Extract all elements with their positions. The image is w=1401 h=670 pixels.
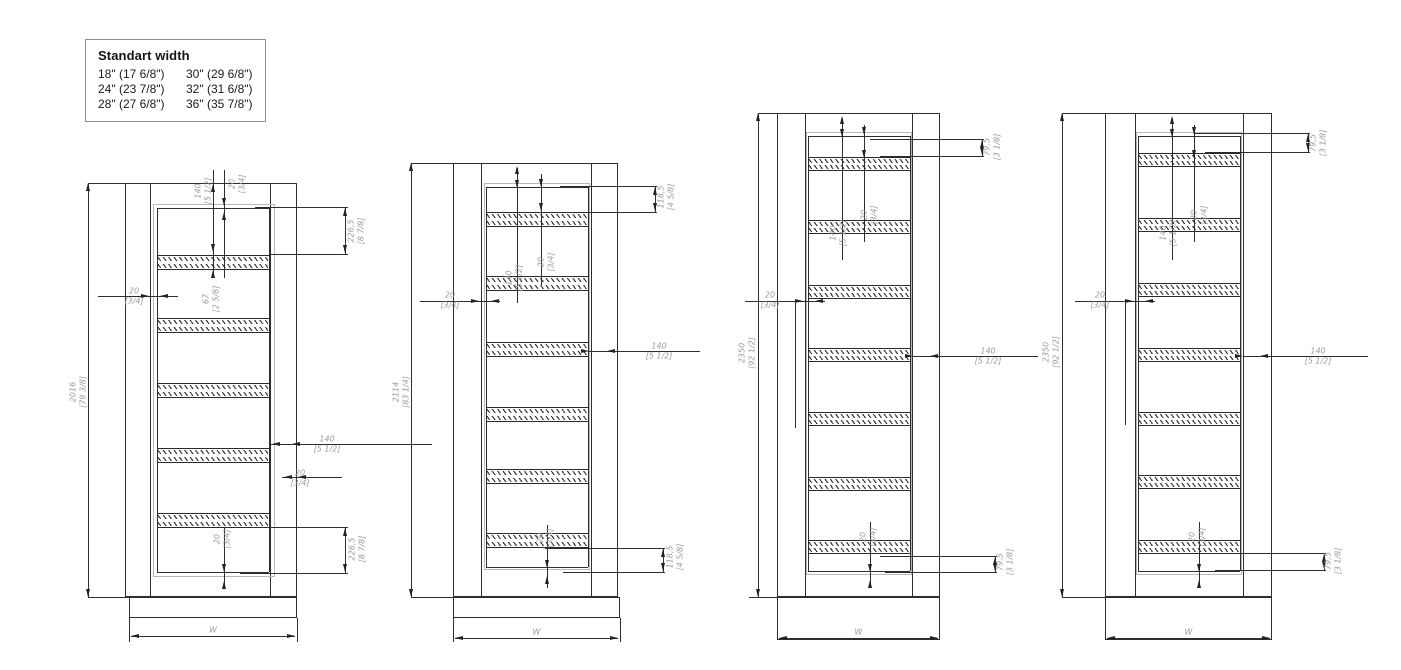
door2-extension-tick xyxy=(453,618,454,642)
louver-hatch-row xyxy=(809,485,909,489)
door2-dimension-line xyxy=(580,212,657,213)
louver-hatch-row xyxy=(809,287,909,291)
dimension-arrow xyxy=(930,354,938,358)
door4-dim-label-center2: 20 [3/4] xyxy=(1190,205,1209,224)
dimension-arrow xyxy=(539,203,543,211)
louver-hatch-row xyxy=(158,385,268,389)
dimension-arrow xyxy=(862,150,866,158)
louver-hatch-row xyxy=(158,327,268,331)
dimension-arrow xyxy=(515,166,519,174)
dimension-arrow xyxy=(661,563,665,571)
louver-hatch-row xyxy=(487,285,587,289)
door2-height-dimension-line xyxy=(411,163,412,597)
width-option: 24" (23 7/8") xyxy=(98,82,186,97)
dimension-arrow xyxy=(409,163,413,171)
dimension-arrow xyxy=(86,589,90,597)
door1-louver-strip xyxy=(157,318,269,333)
door2-stile-line xyxy=(591,163,592,597)
technical-drawing-canvas: Standart width 18" (17 6/8") 30" (29 6/8… xyxy=(0,0,1401,670)
door3-dim-label-bottom_center: 20 [3/4] xyxy=(859,527,878,546)
louver-hatch-row xyxy=(1139,477,1239,481)
door3-dim-label-left: 20 [3/4] xyxy=(760,291,779,310)
dimension-arrow xyxy=(840,129,844,137)
dimension-arrow xyxy=(545,560,549,568)
door1-dim-label-center: 67 [2 5/8] xyxy=(202,286,221,313)
door1-dimension-line xyxy=(270,254,348,255)
dimension-arrow xyxy=(1192,150,1196,158)
dimension-arrow xyxy=(292,442,300,446)
dimension-arrow xyxy=(779,636,787,640)
door1-dim-label-right_bottom: 226,5 [8 7/8] xyxy=(348,536,367,563)
door2-height-label: 2114 [83 1/4] xyxy=(392,376,411,408)
door4-dim-label-left: 20 [3/4] xyxy=(1090,291,1109,310)
door1-louver-strip xyxy=(157,513,269,528)
width-option: 36" (35 7/8") xyxy=(186,97,253,112)
dimension-arrow xyxy=(607,349,615,353)
door4-bottom-rail-line xyxy=(1138,571,1240,572)
door3-dimension-line xyxy=(880,156,984,157)
dimension-arrow xyxy=(211,244,215,252)
dimension-arrow xyxy=(515,180,519,188)
louver-hatch-row xyxy=(809,228,909,232)
dimension-arrow xyxy=(455,636,463,640)
door2-dimension-line xyxy=(545,548,665,549)
door1-dimension-line xyxy=(223,527,348,528)
door1-dimension-line xyxy=(255,207,348,208)
louver-hatch-row xyxy=(158,457,268,461)
door2-dim-label-right_bottom: 118,5 [4 5/8] xyxy=(666,544,685,571)
door4-dim-label-center1: 140 [5 1/2] xyxy=(1159,220,1178,247)
dimension-arrow xyxy=(1060,113,1064,121)
door2-panel-right-line xyxy=(588,187,589,567)
door1-louver-strip xyxy=(157,448,269,463)
louver-hatch-row xyxy=(1139,285,1239,289)
louver-hatch-row xyxy=(158,515,268,519)
louver-hatch-row xyxy=(809,356,909,360)
door2-louver-strip xyxy=(486,342,588,357)
louver-hatch-row xyxy=(1139,548,1239,552)
dimension-arrow xyxy=(1260,354,1268,358)
door4-dim-label-bottom_center: 20 [3/4] xyxy=(1188,527,1207,546)
door3-width-dimension-line xyxy=(779,638,938,639)
door2-dimension-line xyxy=(589,351,700,352)
door3-dimension-line xyxy=(870,139,984,140)
dimension-arrow xyxy=(471,299,479,303)
louver-hatch-row xyxy=(1139,155,1239,159)
door1-panel-right-line xyxy=(269,208,270,572)
door2-dim-label-center1: 140 [5 1/2] xyxy=(505,265,524,292)
door3-louver-strip xyxy=(808,412,910,426)
dimension-arrow xyxy=(581,349,589,353)
dimension-arrow xyxy=(610,636,618,640)
door1-dim-label-top2: 20 [3/4] xyxy=(228,174,247,193)
louver-hatch-row xyxy=(809,293,909,297)
door2-extension-line xyxy=(411,163,453,164)
louver-hatch-row xyxy=(1139,414,1239,418)
dimension-arrow xyxy=(491,299,499,303)
dimension-arrow xyxy=(222,212,226,220)
door2-bottom-rail-line xyxy=(486,567,588,568)
door3-dim-label-center1: 140 [5 1/2] xyxy=(829,220,848,247)
door2-dim-label-right_top: 118,5 [4 5/8] xyxy=(657,184,676,211)
louver-hatch-row xyxy=(809,165,909,169)
door3-louver-strip xyxy=(808,477,910,491)
door4-louver-strip xyxy=(1138,153,1240,167)
width-option: 18" (17 6/8") xyxy=(98,67,186,82)
door4-dim-label-right_top: 79,5 [3 1/8] xyxy=(1309,130,1328,157)
louver-hatch-row xyxy=(158,450,268,454)
door1-height-dimension-line xyxy=(88,183,89,597)
dimension-arrow xyxy=(545,576,549,584)
dimension-arrow xyxy=(86,183,90,191)
dimension-arrow xyxy=(409,589,413,597)
door2-width-dimension-line xyxy=(455,638,618,639)
door4-width-dimension-line xyxy=(1107,638,1270,639)
dimension-arrow xyxy=(222,564,226,572)
door1-base xyxy=(129,597,297,618)
louver-hatch-row xyxy=(1139,483,1239,487)
door1-dim-label-bottom_center: 20 [3/4] xyxy=(213,529,232,548)
door4-dim-label-right_bottom: 79,5 [3 1/8] xyxy=(1324,548,1343,575)
door4-louver-strip xyxy=(1138,348,1240,362)
door3-dimension-line xyxy=(745,301,825,302)
dimension-arrow xyxy=(343,245,347,253)
width-option: 30" (29 6/8") xyxy=(186,67,253,82)
door4-louver-strip xyxy=(1138,412,1240,426)
door4-width-label: W xyxy=(1185,627,1193,637)
dimension-arrow xyxy=(756,113,760,121)
louver-hatch-row xyxy=(809,479,909,483)
door2-extension-tick xyxy=(620,618,621,642)
louver-hatch-row xyxy=(158,392,268,396)
dimension-arrow xyxy=(661,549,665,557)
dimension-arrow xyxy=(1060,589,1064,597)
door1-extension-tick xyxy=(297,618,298,642)
louver-hatch-row xyxy=(809,548,909,552)
door1-dimension-line xyxy=(240,573,348,574)
door4-extension-line xyxy=(1062,597,1105,598)
dimension-arrow xyxy=(756,589,760,597)
door4-dim-label-right_mid1: 140 [5 1/2] xyxy=(1305,347,1332,366)
door2-dim-label-center2: 20 [3/4] xyxy=(537,252,556,271)
door1-stile-line xyxy=(150,183,151,597)
door2-dimension-line xyxy=(420,301,500,302)
louver-hatch-row xyxy=(487,278,587,282)
louver-hatch-row xyxy=(487,471,587,475)
door2-leaf xyxy=(484,183,590,570)
dimension-arrow xyxy=(840,116,844,124)
door2-base xyxy=(453,597,620,618)
door3-height-label: 2350 [92 1/2] xyxy=(738,337,757,369)
louver-hatch-row xyxy=(1139,291,1239,295)
louver-hatch-row xyxy=(809,414,909,418)
door1-louver-strip xyxy=(157,383,269,398)
door2-louver-strip xyxy=(486,407,588,422)
width-option: 32" (31 6/8") xyxy=(186,82,253,97)
door1-dimension-line xyxy=(224,170,225,278)
door2-louver-strip xyxy=(486,276,588,291)
louver-hatch-row xyxy=(1139,350,1239,354)
door3-width-label: W xyxy=(855,627,863,637)
dimension-arrow xyxy=(868,564,872,572)
louver-hatch-row xyxy=(487,344,587,348)
dimension-arrow xyxy=(1170,129,1174,137)
door4-height-label: 2350 [92 1/2] xyxy=(1042,336,1061,368)
door2-louver-strip xyxy=(486,469,588,484)
door2-extension-line xyxy=(411,597,453,598)
louver-hatch-row xyxy=(809,350,909,354)
legend-grid: 18" (17 6/8") 30" (29 6/8") 24" (23 7/8"… xyxy=(98,67,253,112)
dimension-arrow xyxy=(131,634,139,638)
door4-dimension-line xyxy=(1195,133,1310,134)
dimension-arrow xyxy=(272,442,280,446)
door2-top-rail-line xyxy=(486,187,588,188)
door3-top-rail-line xyxy=(808,136,910,137)
door4-height-dimension-line xyxy=(1062,113,1063,597)
door4-dimension-line xyxy=(1205,152,1310,153)
dimension-arrow xyxy=(1262,636,1270,640)
door4-dimension-line xyxy=(1125,301,1126,425)
door4-dimension-line xyxy=(1075,301,1155,302)
door1-extension-line xyxy=(88,183,125,184)
door2-louver-strip xyxy=(486,212,588,227)
dimension-arrow xyxy=(862,127,866,135)
door2-stile-line xyxy=(481,163,482,597)
dimension-arrow xyxy=(343,564,347,572)
door1-extension-tick xyxy=(129,618,130,642)
louver-hatch-row xyxy=(487,351,587,355)
door3-dim-label-right_bottom: 79,5 [3 1/8] xyxy=(996,549,1015,576)
louver-hatch-row xyxy=(487,409,587,413)
door3-extension-line xyxy=(758,113,777,114)
door1-width-dimension-line xyxy=(131,636,295,637)
door4-extension-line xyxy=(1062,113,1105,114)
door1-width-label: W xyxy=(209,625,217,635)
door1-dim-label-top1: 140 [5 1/2] xyxy=(194,178,213,205)
door2-panel-left-line xyxy=(486,187,487,567)
dimension-arrow xyxy=(222,198,226,206)
door4-stile-line xyxy=(1243,113,1244,597)
door3-dim-label-right_mid1: 140 [5 1/2] xyxy=(975,347,1002,366)
door3-dim-label-right_top: 79,5 [3 1/8] xyxy=(983,134,1002,161)
dimension-arrow xyxy=(1197,580,1201,588)
door3-louver-strip xyxy=(808,348,910,362)
dimension-arrow xyxy=(1125,299,1133,303)
dimension-arrow xyxy=(795,299,803,303)
door1-height-label: 2016 [79 3/8] xyxy=(69,376,88,408)
door4-dimension-line xyxy=(1210,553,1326,554)
door2-dimension-line xyxy=(563,572,665,573)
louver-hatch-row xyxy=(487,478,587,482)
dimension-arrow xyxy=(868,580,872,588)
door2-dim-label-left: 20 [3/4] xyxy=(440,291,459,310)
dimension-arrow xyxy=(211,270,215,278)
door3-height-dimension-line xyxy=(758,113,759,597)
door1-dim-label-right_mid1: 140 [5 1/2] xyxy=(314,435,341,454)
louver-hatch-row xyxy=(1139,161,1239,165)
door2-dim-label-bottom_center: 20 [3/4] xyxy=(536,528,555,547)
louver-hatch-row xyxy=(809,420,909,424)
dimension-arrow xyxy=(905,354,913,358)
louver-hatch-row xyxy=(1139,356,1239,360)
door4-louver-strip xyxy=(1138,475,1240,489)
door3-dimension-line xyxy=(885,572,997,573)
door3-extension-line xyxy=(749,597,777,598)
dimension-arrow xyxy=(1197,564,1201,572)
dimension-arrow xyxy=(1235,354,1243,358)
door4-louver-strip xyxy=(1138,283,1240,297)
dimension-arrow xyxy=(815,299,823,303)
door2-width-label: W xyxy=(533,627,541,637)
door1-dim-label-right_top: 226,5 [8 7/8] xyxy=(347,218,366,245)
dimension-arrow xyxy=(287,634,295,638)
dimension-arrow xyxy=(222,581,226,589)
louver-hatch-row xyxy=(487,214,587,218)
louver-hatch-row xyxy=(1139,226,1239,230)
door2-dimension-line xyxy=(560,186,657,187)
legend-title: Standart width xyxy=(98,48,253,63)
door3-dimension-line xyxy=(880,556,997,557)
door3-dim-label-center2: 20 [3/4] xyxy=(860,205,879,224)
dimension-arrow xyxy=(539,179,543,187)
door3-louver-strip xyxy=(808,285,910,299)
louver-hatch-row xyxy=(1139,420,1239,424)
door1-extension-line xyxy=(88,597,129,598)
door1-dim-label-right_mid2: 20 [3/4] xyxy=(290,469,309,488)
door4-top-rail-line xyxy=(1138,136,1240,137)
door2-dim-label-right_mid1: 140 [5 1/2] xyxy=(646,342,673,361)
dimension-arrow xyxy=(343,528,347,536)
width-option: 28" (27 6/8") xyxy=(98,97,186,112)
door4-dimension-line xyxy=(1215,570,1326,571)
louver-hatch-row xyxy=(809,159,909,163)
louver-hatch-row xyxy=(487,416,587,420)
door3-dimension-line xyxy=(795,301,796,428)
door3-louver-strip xyxy=(808,157,910,171)
dimension-arrow xyxy=(343,208,347,216)
dimension-arrow xyxy=(1145,299,1153,303)
dimension-arrow xyxy=(1107,636,1115,640)
louver-hatch-row xyxy=(487,221,587,225)
dimension-arrow xyxy=(160,294,168,298)
louver-hatch-row xyxy=(158,320,268,324)
louver-hatch-row xyxy=(158,522,268,526)
standard-width-legend: Standart width 18" (17 6/8") 30" (29 6/8… xyxy=(85,39,266,122)
dimension-arrow xyxy=(1170,116,1174,124)
door1-dim-label-left: 20 [3/4] xyxy=(124,287,143,306)
dimension-arrow xyxy=(930,636,938,640)
